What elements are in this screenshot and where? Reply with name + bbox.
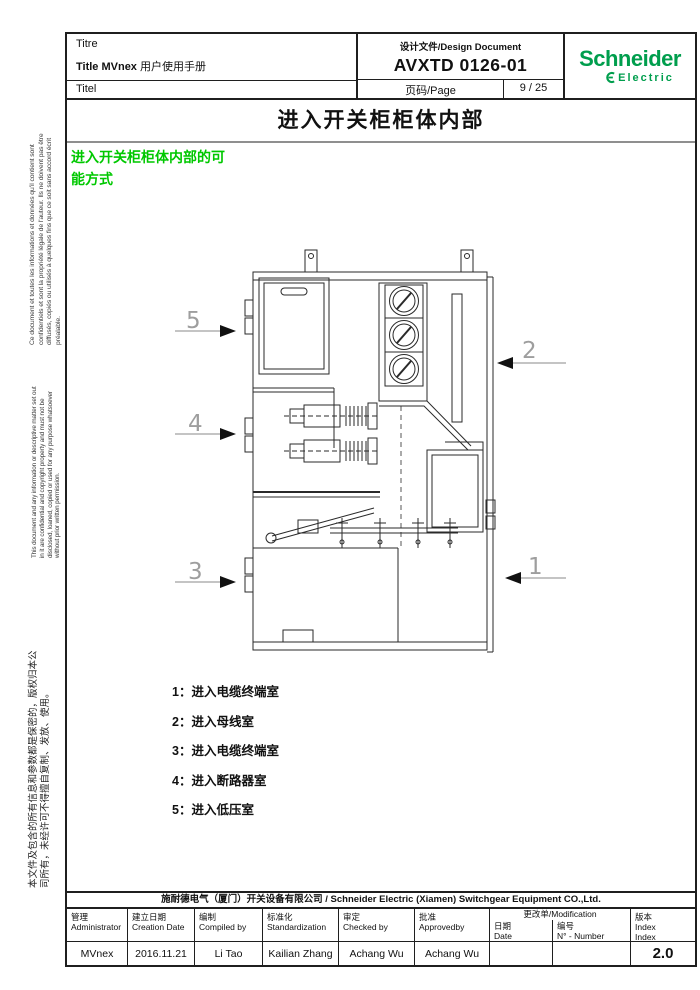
column-header: 建立日期Creation Date — [128, 909, 194, 942]
page-label: 页码/Page — [358, 80, 504, 98]
legend-text: 进入断路器室 — [191, 774, 266, 788]
confidentiality-note-english: This document and any information or des… — [31, 386, 62, 558]
column-header: 编制Compiled by — [195, 909, 262, 942]
company-name: 施耐德电气（厦门）开关设备有限公司 / Schneider Electric (… — [65, 893, 697, 909]
header-title-cell: Titre Title MVnex 用户使用手册 Titel — [67, 34, 358, 98]
column-header: 标准化Standardization — [263, 909, 338, 942]
header-zh: 标准化 — [267, 912, 338, 922]
confidentiality-note-chinese: 本文件及包含的所有信息和参数都是保密的，版权归本公司所有，未经许可不得擅自复制、… — [28, 650, 51, 888]
callout-number-4: 4 — [188, 411, 203, 437]
number-en: N° - Number — [557, 931, 630, 941]
titel-label: Titel — [67, 80, 356, 98]
busbar-bushings — [379, 283, 471, 450]
compiled-by-value: Li Tao — [195, 942, 262, 965]
legend-list: 1：进入电缆终端室 2：进入母线室 3：进入电缆终端室 4：进入断路器室 5：进… — [172, 681, 279, 829]
callout-number-3: 3 — [188, 559, 203, 585]
doc-type-label: 设计文件/Design Document — [358, 39, 563, 53]
version-en1: Index — [635, 922, 695, 932]
section-heading-line2: 能方式 — [71, 168, 225, 190]
number-zh: 编号 — [557, 921, 630, 931]
column-administrator: 管理Administrator MVnex — [67, 909, 128, 965]
approved-by-value: Achang Wu — [415, 942, 489, 965]
doc-info: 设计文件/Design Document AVXTD 0126-01 — [358, 34, 563, 79]
legend-item-4: 4：进入断路器室 — [172, 770, 279, 800]
header-table: Titre Title MVnex 用户使用手册 Titel 设计文件/Desi… — [65, 32, 697, 100]
callout-number-5: 5 — [186, 308, 201, 334]
modification-date-value — [490, 942, 552, 965]
legend-text: 进入电缆终端室 — [191, 744, 279, 758]
column-creation-date: 建立日期Creation Date 2016.11.21 — [128, 909, 195, 965]
header-en: Approvedby — [419, 922, 489, 932]
title-divider — [67, 141, 695, 143]
column-standardization: 标准化Standardization Kailian Zhang — [263, 909, 339, 965]
header-zh: 管理 — [71, 912, 127, 922]
standardization-value: Kailian Zhang — [263, 942, 338, 965]
legend-item-5: 5：进入低压室 — [172, 799, 279, 829]
cabinet-outline — [245, 250, 495, 652]
header-zh: 建立日期 — [132, 912, 194, 922]
modification-title: 更改单/Modification — [490, 909, 630, 920]
legend-number: 1： — [172, 685, 191, 699]
header-en: Compiled by — [199, 922, 262, 932]
modification-number-value — [552, 942, 630, 965]
title-line: Title MVnex 用户使用手册 — [67, 58, 356, 80]
date-en: Date — [494, 931, 552, 941]
legend-item-2: 2：进入母线室 — [172, 711, 279, 741]
callouts: 5 4 3 2 1 — [175, 308, 566, 588]
callout-number-1: 1 — [528, 554, 543, 580]
page-row: 页码/Page 9 / 25 — [358, 79, 563, 98]
callout-number-2: 2 — [522, 338, 537, 364]
schneider-mark-icon — [604, 71, 617, 84]
page-number: 9 / 25 — [504, 80, 563, 98]
section-heading-line1: 进入开关柜柜体内部的可 — [71, 146, 225, 168]
title-cn: 用户使用手册 — [137, 61, 206, 73]
header-zh: 批准 — [419, 912, 489, 922]
legend-number: 2： — [172, 715, 191, 729]
modification-values — [490, 942, 630, 965]
modification-sublabels: 日期Date 编号N° - Number — [490, 920, 630, 941]
titre-label: Titre — [67, 34, 356, 58]
legend-text: 进入母线室 — [191, 715, 254, 729]
checked-by-value: Achang Wu — [339, 942, 414, 965]
confidentiality-note-french: Ce document et toutes les informations e… — [29, 131, 64, 345]
version-value: 2.0 — [631, 942, 695, 965]
modification-header: 更改单/Modification 日期Date 编号N° - Number — [490, 909, 630, 942]
legend-number: 3： — [172, 744, 191, 758]
legend-item-1: 1：进入电缆终端室 — [172, 681, 279, 711]
creation-date-value: 2016.11.21 — [128, 942, 194, 965]
doc-number: AVXTD 0126-01 — [358, 55, 563, 76]
section-heading: 进入开关柜柜体内部的可 能方式 — [71, 146, 225, 190]
page-title: 进入开关柜柜体内部 — [67, 104, 695, 134]
title-en: Title MVnex — [76, 61, 137, 73]
column-approved-by: 批准Approvedby Achang Wu — [415, 909, 490, 965]
version-en2: Index — [635, 932, 695, 942]
administrator-value: MVnex — [67, 942, 127, 965]
column-modification: 更改单/Modification 日期Date 编号N° - Number — [490, 909, 631, 965]
approval-table: 管理Administrator MVnex 建立日期Creation Date … — [65, 909, 697, 967]
column-header: 管理Administrator — [67, 909, 127, 942]
column-header: 审定Checked by — [339, 909, 414, 942]
low-voltage-compartment — [259, 278, 329, 374]
legend-text: 进入低压室 — [191, 803, 254, 817]
logo-subline: Electric — [604, 71, 674, 84]
header-en: Checked by — [343, 922, 414, 932]
cabinet-diagram: 5 4 3 2 1 — [170, 240, 570, 665]
column-checked-by: 审定Checked by Achang Wu — [339, 909, 415, 965]
header-en: Creation Date — [132, 922, 194, 932]
logo-wordmark: Schneider — [579, 48, 681, 70]
modification-date-label: 日期Date — [490, 920, 552, 941]
date-zh: 日期 — [494, 921, 552, 931]
legend-number: 4： — [172, 774, 191, 788]
legend-item-3: 3：进入电缆终端室 — [172, 740, 279, 770]
legend-number: 5： — [172, 803, 191, 817]
schneider-logo: Schneider Electric — [565, 34, 695, 98]
column-version: 版本IndexIndex 2.0 — [631, 909, 695, 965]
header-doc-cell: 设计文件/Design Document AVXTD 0126-01 页码/Pa… — [358, 34, 565, 98]
modification-number-label: 编号N° - Number — [552, 920, 630, 941]
header-zh: 编制 — [199, 912, 262, 922]
document-page: Ce document et toutes les informations e… — [0, 0, 700, 990]
legend-text: 进入电缆终端室 — [191, 685, 279, 699]
circuit-breaker — [284, 403, 380, 464]
header-en: Standardization — [267, 922, 338, 932]
header-en: Administrator — [71, 922, 127, 932]
version-zh: 版本 — [635, 912, 695, 922]
column-header: 批准Approvedby — [415, 909, 489, 942]
header-zh: 审定 — [343, 912, 414, 922]
column-compiled-by: 编制Compiled by Li Tao — [195, 909, 263, 965]
logo-electric: Electric — [618, 72, 674, 84]
version-header: 版本IndexIndex — [631, 909, 695, 942]
partitions — [253, 388, 401, 642]
